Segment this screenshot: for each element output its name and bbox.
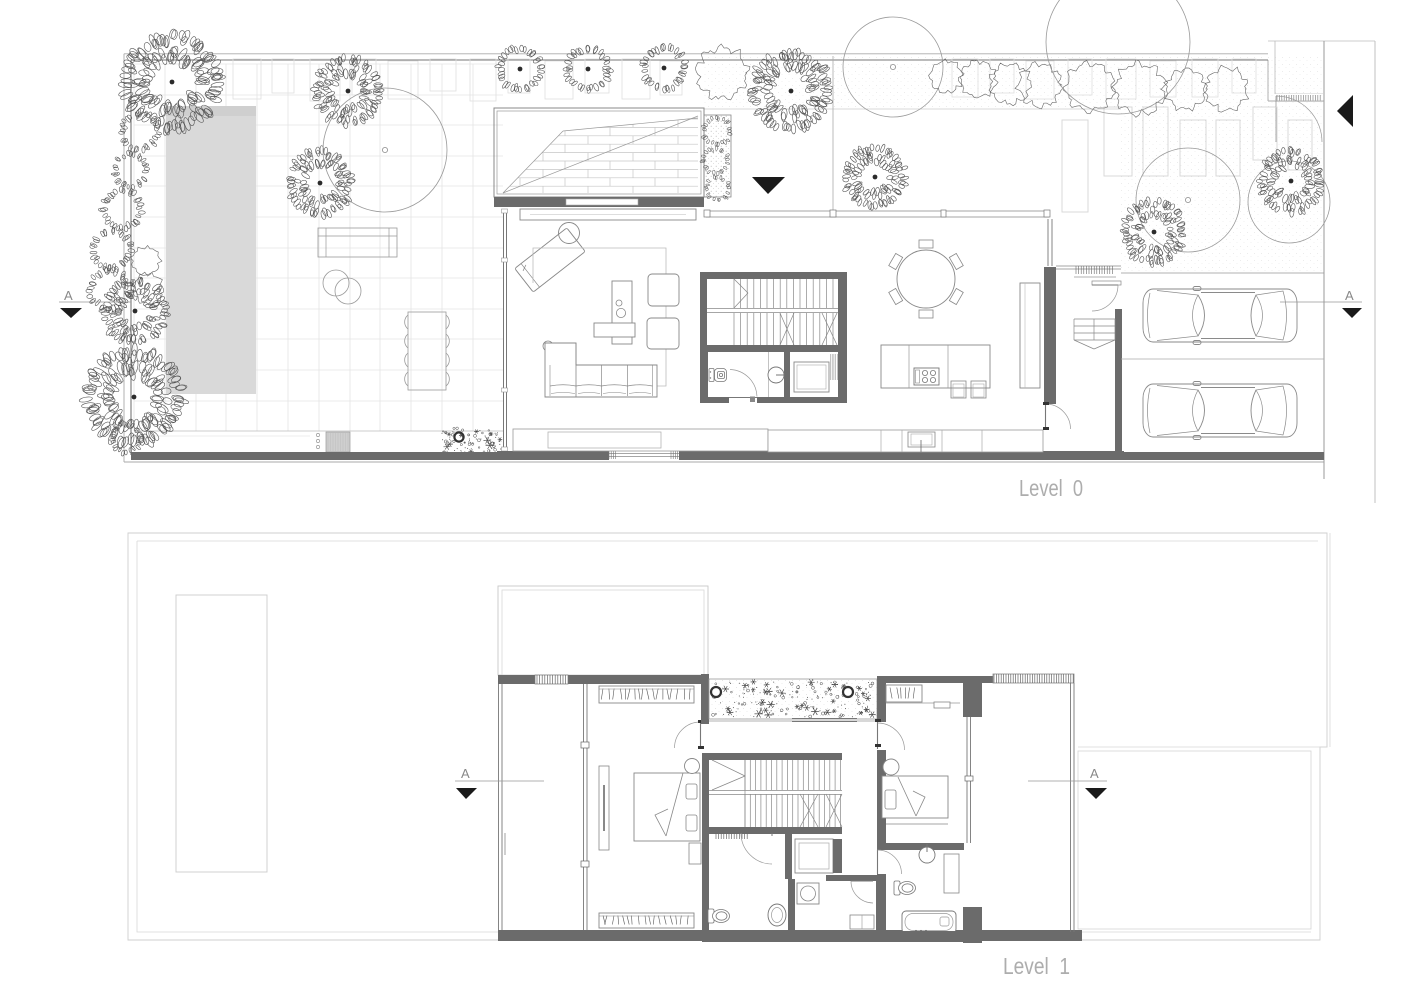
svg-text:Level 1: Level 1 [1003,953,1070,979]
svg-text:A: A [461,766,470,781]
svg-text:A: A [1090,766,1099,781]
svg-text:Level 0: Level 0 [1019,475,1083,501]
svg-text:A: A [1345,288,1354,303]
svg-text:A: A [64,288,73,303]
